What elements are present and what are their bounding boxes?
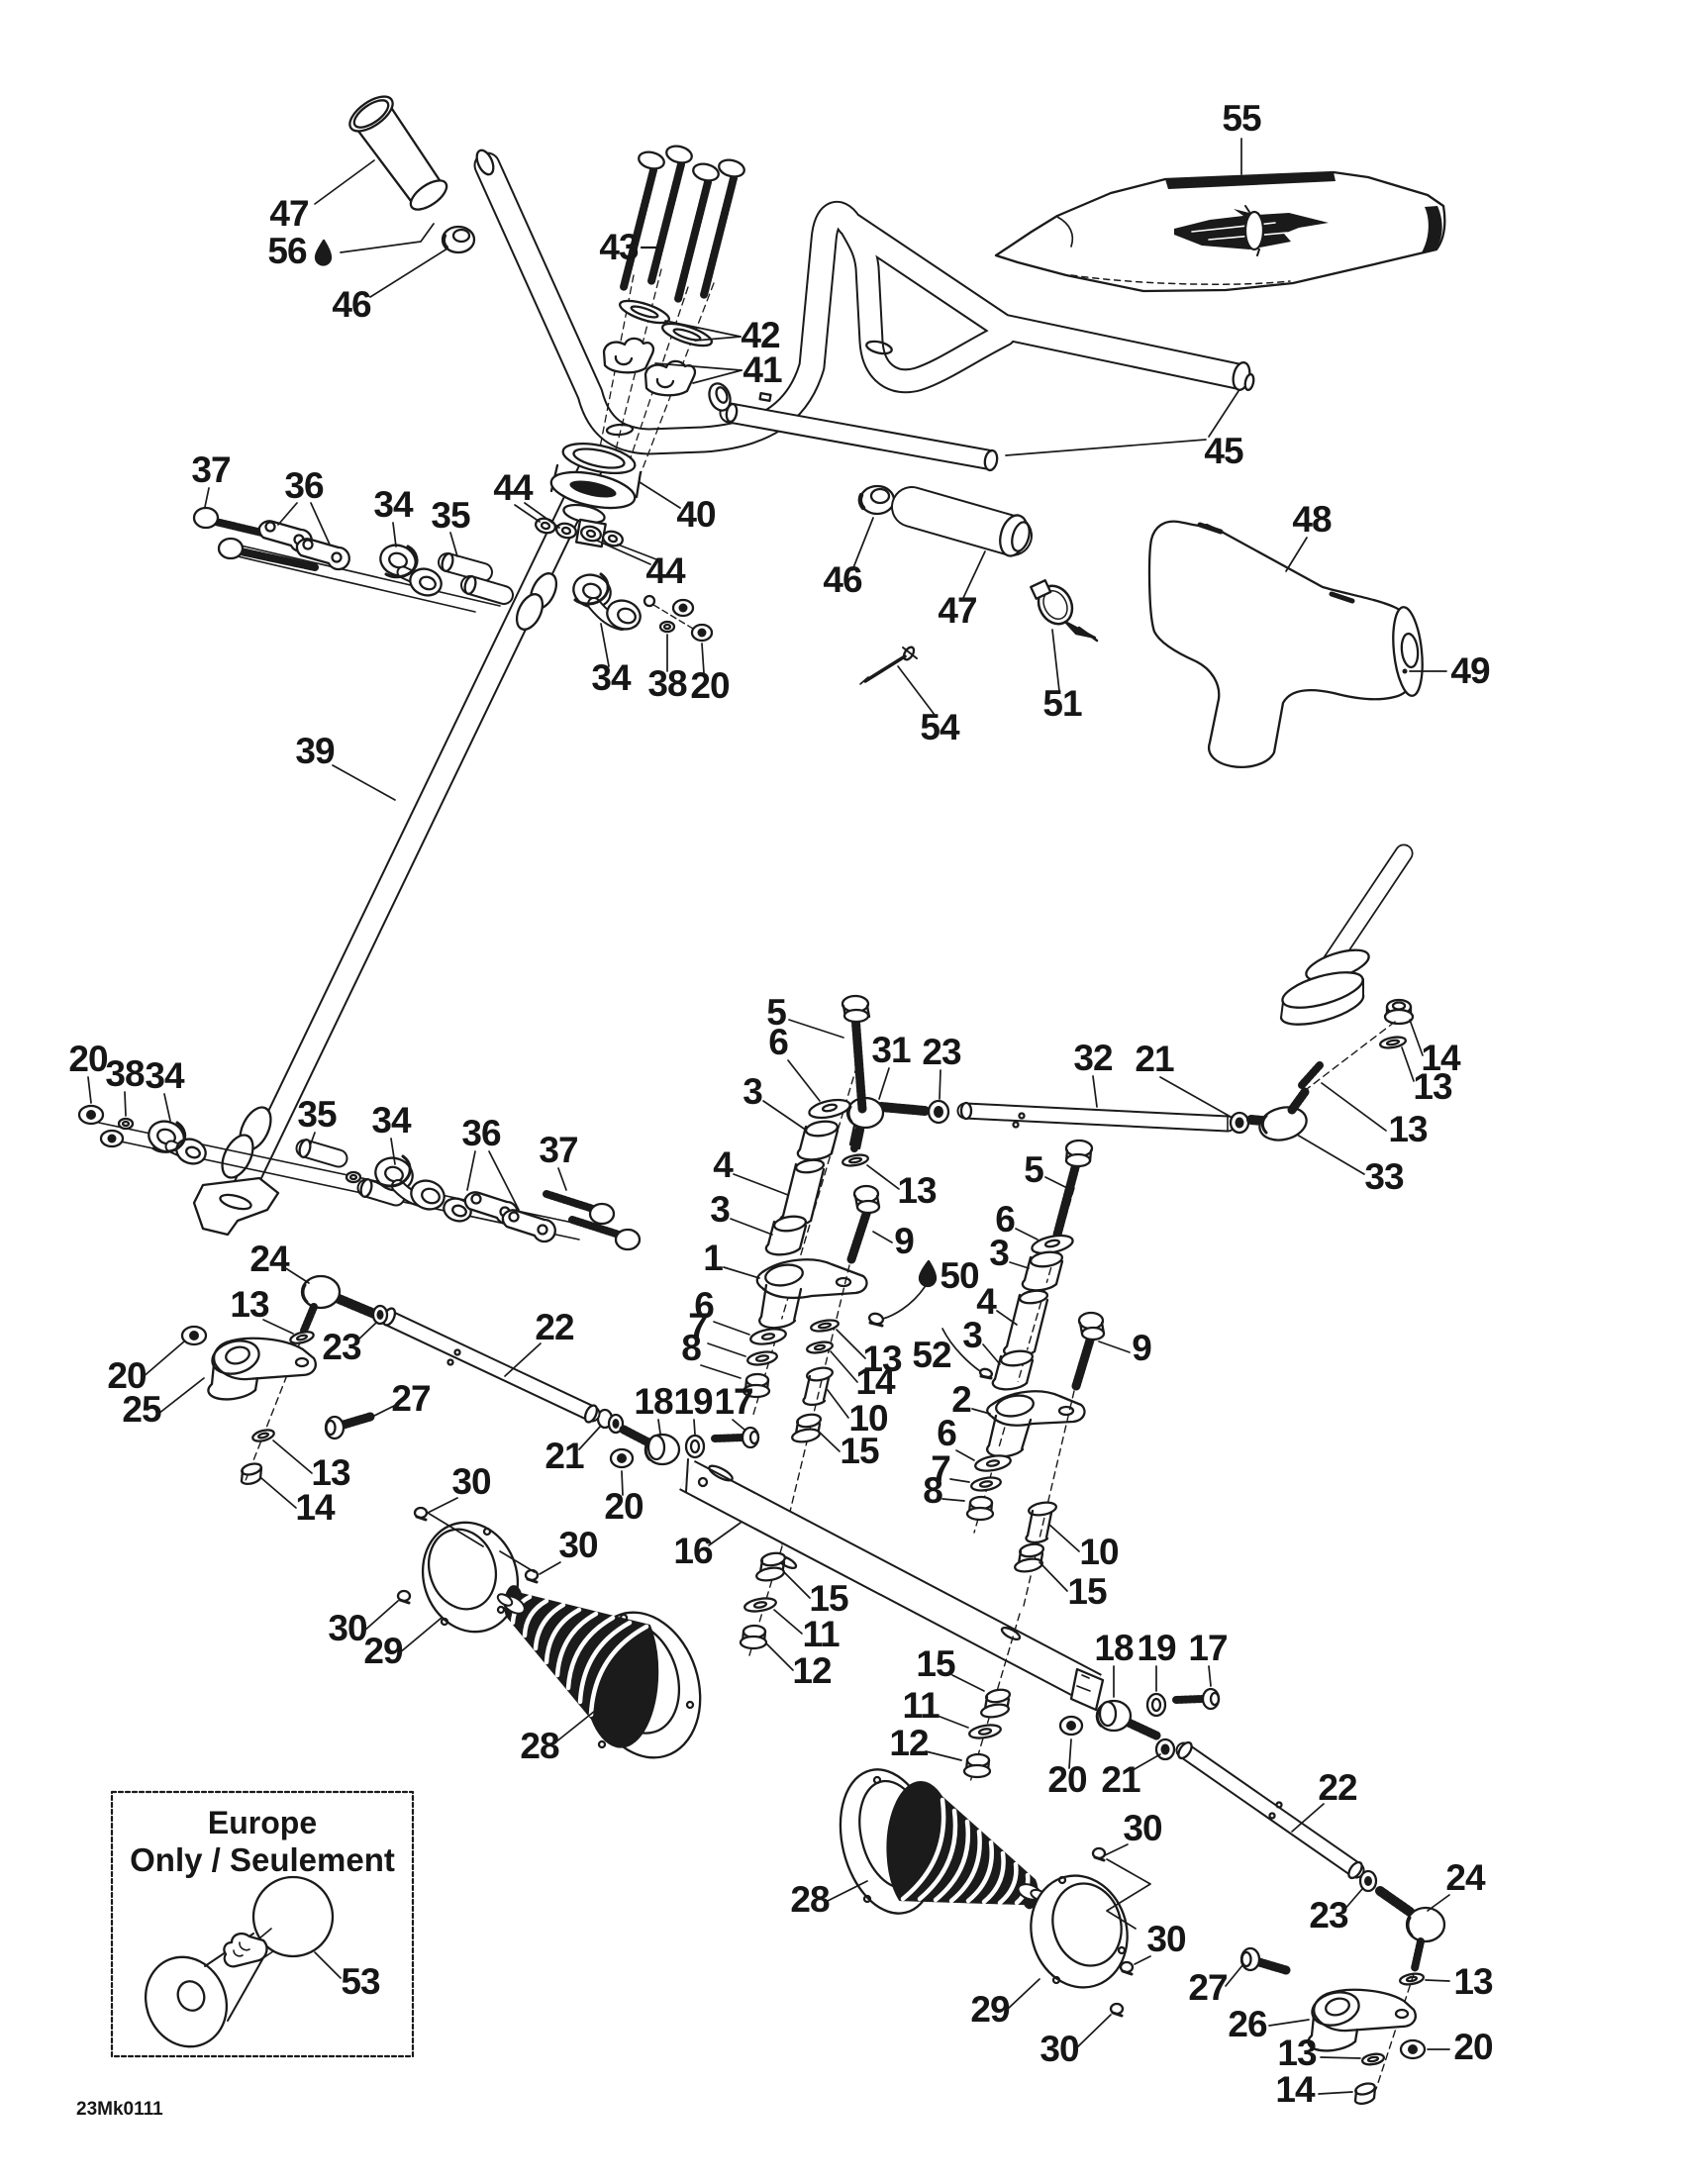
svg-text:50: 50 — [940, 1255, 979, 1296]
svg-text:44: 44 — [493, 467, 534, 508]
svg-text:14: 14 — [1275, 2069, 1316, 2110]
svg-text:15: 15 — [1067, 1571, 1107, 1612]
svg-text:15: 15 — [809, 1578, 848, 1619]
svg-text:22: 22 — [1318, 1767, 1357, 1808]
svg-text:12: 12 — [792, 1650, 832, 1691]
svg-text:6: 6 — [768, 1022, 788, 1062]
svg-text:38: 38 — [105, 1053, 145, 1094]
svg-text:15: 15 — [916, 1643, 955, 1684]
svg-text:13: 13 — [897, 1170, 937, 1211]
svg-text:3: 3 — [710, 1189, 730, 1230]
svg-text:14: 14 — [295, 1487, 336, 1528]
svg-text:32: 32 — [1073, 1038, 1113, 1078]
svg-text:20: 20 — [1453, 2027, 1493, 2067]
svg-text:21: 21 — [1135, 1039, 1174, 1079]
svg-text:5: 5 — [1024, 1149, 1043, 1190]
svg-text:46: 46 — [332, 284, 371, 325]
svg-text:28: 28 — [520, 1726, 559, 1766]
svg-text:30: 30 — [558, 1525, 598, 1565]
svg-text:56: 56 — [267, 231, 307, 271]
svg-text:14: 14 — [855, 1361, 896, 1402]
svg-text:29: 29 — [970, 1989, 1010, 2030]
svg-text:9: 9 — [894, 1221, 914, 1261]
svg-text:44: 44 — [645, 550, 686, 591]
svg-text:37: 37 — [539, 1130, 577, 1170]
svg-text:17: 17 — [1188, 1628, 1227, 1668]
svg-text:3: 3 — [962, 1315, 982, 1355]
svg-text:1: 1 — [703, 1238, 723, 1278]
svg-text:6: 6 — [937, 1413, 956, 1453]
svg-text:34: 34 — [145, 1055, 185, 1096]
svg-text:30: 30 — [451, 1461, 491, 1502]
svg-text:20: 20 — [68, 1039, 108, 1079]
svg-text:30: 30 — [1146, 1919, 1186, 1959]
svg-text:19: 19 — [673, 1381, 713, 1422]
svg-text:40: 40 — [676, 494, 716, 535]
svg-text:8: 8 — [681, 1328, 701, 1368]
svg-text:24: 24 — [1445, 1857, 1486, 1898]
svg-text:41: 41 — [742, 349, 782, 390]
svg-text:27: 27 — [1188, 1967, 1227, 2008]
svg-text:19: 19 — [1137, 1628, 1176, 1668]
svg-text:11: 11 — [802, 1614, 840, 1654]
svg-text:21: 21 — [1101, 1759, 1140, 1800]
svg-text:43: 43 — [599, 227, 639, 267]
svg-text:53: 53 — [341, 1961, 380, 2002]
svg-text:29: 29 — [363, 1631, 403, 1671]
svg-text:17: 17 — [714, 1381, 752, 1422]
svg-text:9: 9 — [1132, 1328, 1151, 1368]
svg-text:3: 3 — [742, 1071, 762, 1112]
svg-text:12: 12 — [889, 1723, 929, 1763]
svg-text:23Mk0111: 23Mk0111 — [76, 2099, 163, 2120]
svg-text:34: 34 — [371, 1100, 412, 1141]
svg-text:36: 36 — [284, 465, 324, 506]
svg-text:20: 20 — [1047, 1759, 1087, 1800]
svg-text:31: 31 — [871, 1030, 911, 1070]
svg-text:34: 34 — [591, 657, 632, 698]
svg-text:20: 20 — [604, 1486, 643, 1527]
svg-text:30: 30 — [328, 1608, 367, 1648]
svg-text:28: 28 — [790, 1879, 830, 1920]
svg-text:47: 47 — [269, 193, 308, 234]
svg-text:23: 23 — [322, 1327, 361, 1367]
svg-text:10: 10 — [1079, 1532, 1119, 1572]
svg-text:8: 8 — [923, 1470, 942, 1511]
svg-text:24: 24 — [249, 1239, 290, 1279]
svg-text:54: 54 — [920, 707, 960, 747]
svg-text:20: 20 — [690, 665, 730, 706]
svg-text:13: 13 — [1413, 1066, 1452, 1107]
svg-text:13: 13 — [1277, 2033, 1317, 2073]
svg-text:34: 34 — [373, 484, 414, 525]
svg-text:45: 45 — [1204, 431, 1243, 471]
svg-text:Only / Seulement: Only / Seulement — [130, 1841, 395, 1878]
svg-text:49: 49 — [1450, 650, 1490, 691]
svg-text:18: 18 — [1094, 1628, 1134, 1668]
svg-text:Europe: Europe — [208, 1805, 317, 1840]
svg-text:13: 13 — [1453, 1961, 1493, 2002]
svg-text:15: 15 — [840, 1431, 879, 1471]
svg-text:22: 22 — [535, 1307, 574, 1347]
svg-text:27: 27 — [391, 1378, 430, 1419]
svg-text:20: 20 — [107, 1355, 147, 1396]
svg-text:37: 37 — [191, 449, 230, 490]
svg-text:4: 4 — [713, 1144, 734, 1185]
svg-text:52: 52 — [912, 1335, 951, 1375]
svg-text:33: 33 — [1364, 1156, 1404, 1197]
svg-text:35: 35 — [431, 495, 470, 536]
svg-text:51: 51 — [1042, 683, 1082, 724]
svg-text:46: 46 — [823, 559, 862, 600]
svg-text:11: 11 — [902, 1685, 940, 1726]
svg-text:18: 18 — [634, 1381, 673, 1422]
svg-text:35: 35 — [297, 1094, 337, 1135]
svg-text:48: 48 — [1292, 499, 1332, 540]
svg-text:13: 13 — [1388, 1109, 1428, 1149]
svg-text:55: 55 — [1222, 98, 1261, 139]
svg-text:3: 3 — [989, 1233, 1009, 1273]
svg-text:21: 21 — [544, 1436, 584, 1476]
svg-text:16: 16 — [673, 1531, 713, 1571]
svg-text:30: 30 — [1039, 2029, 1079, 2069]
svg-text:36: 36 — [461, 1113, 501, 1153]
svg-text:26: 26 — [1228, 2004, 1267, 2044]
svg-text:23: 23 — [1309, 1895, 1348, 1936]
svg-text:47: 47 — [938, 590, 976, 631]
svg-text:39: 39 — [295, 731, 335, 771]
svg-text:13: 13 — [230, 1284, 269, 1325]
svg-text:23: 23 — [922, 1032, 961, 1072]
svg-text:30: 30 — [1123, 1808, 1162, 1848]
